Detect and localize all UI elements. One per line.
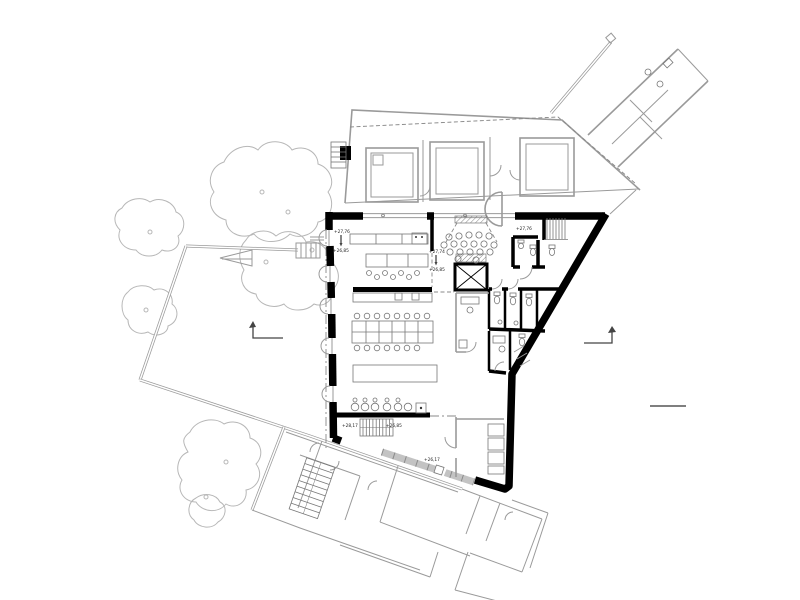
entrance-door-arc: [485, 192, 502, 226]
stair-existing-south: [289, 458, 335, 519]
elevation-label: +28,17: [342, 423, 358, 429]
existing-building-north: [331, 110, 640, 203]
elevation-label: +26,85: [386, 423, 402, 429]
elevation-label: +26,85: [429, 267, 445, 273]
office-desk: [461, 297, 479, 304]
office-room: [456, 293, 489, 352]
floor-plan-canvas: +27,76 +26,85 +27,74 +26,85 +27,76 +28,1…: [0, 0, 800, 600]
kitchen-counter: [350, 233, 428, 244]
tree-canopy: [115, 142, 338, 527]
wc-room-northeast: [513, 237, 545, 279]
stove: [412, 233, 427, 244]
section-cut-left-icon: [249, 321, 283, 338]
toilet-symbol: [530, 248, 535, 255]
door-arc: [510, 170, 520, 180]
door-arc: [368, 481, 377, 490]
existing-room: [366, 148, 418, 202]
toilet-symbol: [519, 338, 524, 346]
sink-symbol: [514, 321, 518, 325]
office-chair: [467, 307, 473, 313]
door-arc: [310, 443, 319, 452]
elevation-label: +27,76: [334, 229, 350, 235]
existing-room: [520, 138, 574, 196]
stair-northeast: [544, 217, 568, 256]
toilet-symbol: [549, 248, 554, 255]
tree-trunk-dots: [144, 190, 314, 499]
toilet-symbol: [494, 296, 499, 304]
long-table: [353, 365, 437, 382]
elevation-label: +26,85: [333, 248, 349, 254]
existing-room: [430, 142, 484, 200]
sink-symbol: [518, 243, 523, 248]
shelving: [488, 424, 504, 474]
elevation-label: +26,17: [424, 457, 440, 463]
floor-plan-drawing: +27,76 +26,85 +27,74 +26,85 +27,76 +28,1…: [0, 0, 800, 600]
bench-seating: [351, 398, 426, 413]
dining-table-long: [352, 313, 433, 351]
elevation-label: +27,74: [429, 249, 445, 255]
toilet-symbol: [526, 298, 531, 306]
servery-island: [366, 254, 428, 280]
terrace-ramp: [220, 250, 252, 266]
door-arc: [420, 186, 430, 196]
terrace-steps: [296, 237, 324, 258]
door-arc: [490, 165, 501, 176]
south-partition: [445, 417, 504, 477]
elevation-label: +27,76: [516, 226, 532, 232]
interior-partitions: [430, 217, 568, 477]
elevator-shaft: [455, 254, 487, 290]
door-arc: [505, 512, 513, 520]
chimney: [340, 146, 351, 160]
section-cut-right-icon: [584, 326, 616, 343]
buffet-counter: [353, 287, 432, 302]
glazed-facade-north: [363, 214, 515, 218]
sink-symbol: [498, 320, 502, 324]
toilet-symbol: [510, 297, 515, 305]
